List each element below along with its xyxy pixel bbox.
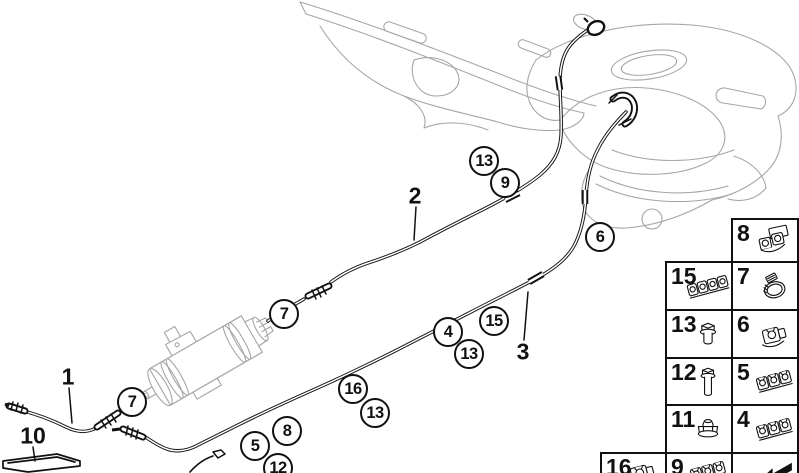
holder-bracket-art [3, 454, 80, 472]
fuel-tank-art [527, 24, 796, 229]
legend-cell-number: 5 [737, 360, 750, 384]
callout-13[interactable]: 13 [360, 398, 390, 428]
legend-cell-7[interactable]: 7 [731, 261, 799, 311]
legend-cell-9[interactable]: 9 [665, 452, 733, 473]
legend-cell-8[interactable]: 8 [731, 218, 799, 263]
callout-9[interactable]: 9 [490, 168, 520, 198]
part-label-1[interactable]: 1 [62, 364, 75, 391]
feed-line-tank-connector [584, 18, 606, 37]
parts-diagram-stage: 1396715413716138512 23110 81571361251141… [0, 0, 799, 473]
part-label-2[interactable]: 2 [409, 183, 422, 210]
double-pipe-clip-icon [752, 225, 796, 258]
legend-cell-12[interactable]: 12 [665, 357, 733, 406]
legend-cell-16[interactable]: 16 [600, 452, 667, 473]
callout-5[interactable]: 5 [240, 431, 270, 461]
callout-15[interactable]: 15 [479, 306, 509, 336]
clip-rail-3-icon [686, 456, 730, 473]
hose-clamp-icon [752, 270, 796, 303]
cap-nut-icon [686, 413, 730, 446]
legend-cell-13[interactable]: 13 [665, 309, 733, 359]
bottom-clip-pointer [190, 450, 225, 472]
hose-right-fitting [97, 413, 118, 428]
direction-arrow-icon [752, 456, 796, 473]
legend-cell-number: 9 [671, 455, 684, 473]
legend-cell-5[interactable]: 5 [731, 357, 799, 406]
return-line-tank-connector [609, 95, 635, 125]
callout-7[interactable]: 7 [269, 299, 299, 329]
part-label-3[interactable]: 3 [517, 339, 530, 366]
legend-cell-6[interactable]: 6 [731, 309, 799, 359]
callout-13[interactable]: 13 [454, 339, 484, 369]
legend-cell-4[interactable]: 4 [731, 404, 799, 454]
feed-line-filter-connector [308, 286, 329, 299]
pipe-clip-icon [752, 318, 796, 351]
clip-rail-3-icon [752, 413, 796, 446]
fuel-feed-line [268, 18, 606, 321]
legend-cell-number: 6 [737, 312, 750, 336]
legend-cell-15[interactable]: 15 [665, 261, 733, 311]
callout-8[interactable]: 8 [272, 416, 302, 446]
underbody-panel-art [300, 2, 599, 131]
legend-cell-number: 4 [737, 407, 750, 431]
hose-left-connector [5, 402, 25, 413]
callout-7[interactable]: 7 [117, 387, 147, 417]
return-line-front-connector [112, 426, 143, 439]
flange-bolt-long-icon [686, 366, 730, 399]
legend-cell-number: 7 [737, 264, 750, 288]
clip-rail-3-icon [752, 366, 796, 399]
legend-cell-11[interactable]: 11 [665, 404, 733, 454]
flange-bolt-short-icon [686, 318, 730, 351]
clip-rail-4-icon [686, 270, 730, 303]
callout-6[interactable]: 6 [585, 222, 615, 252]
pipe-clip-icon [620, 456, 664, 473]
part-label-10[interactable]: 10 [20, 423, 46, 450]
callout-16[interactable]: 16 [338, 374, 368, 404]
legend-cell-number: 8 [737, 221, 750, 245]
legend-cell-arrow[interactable] [731, 452, 799, 473]
